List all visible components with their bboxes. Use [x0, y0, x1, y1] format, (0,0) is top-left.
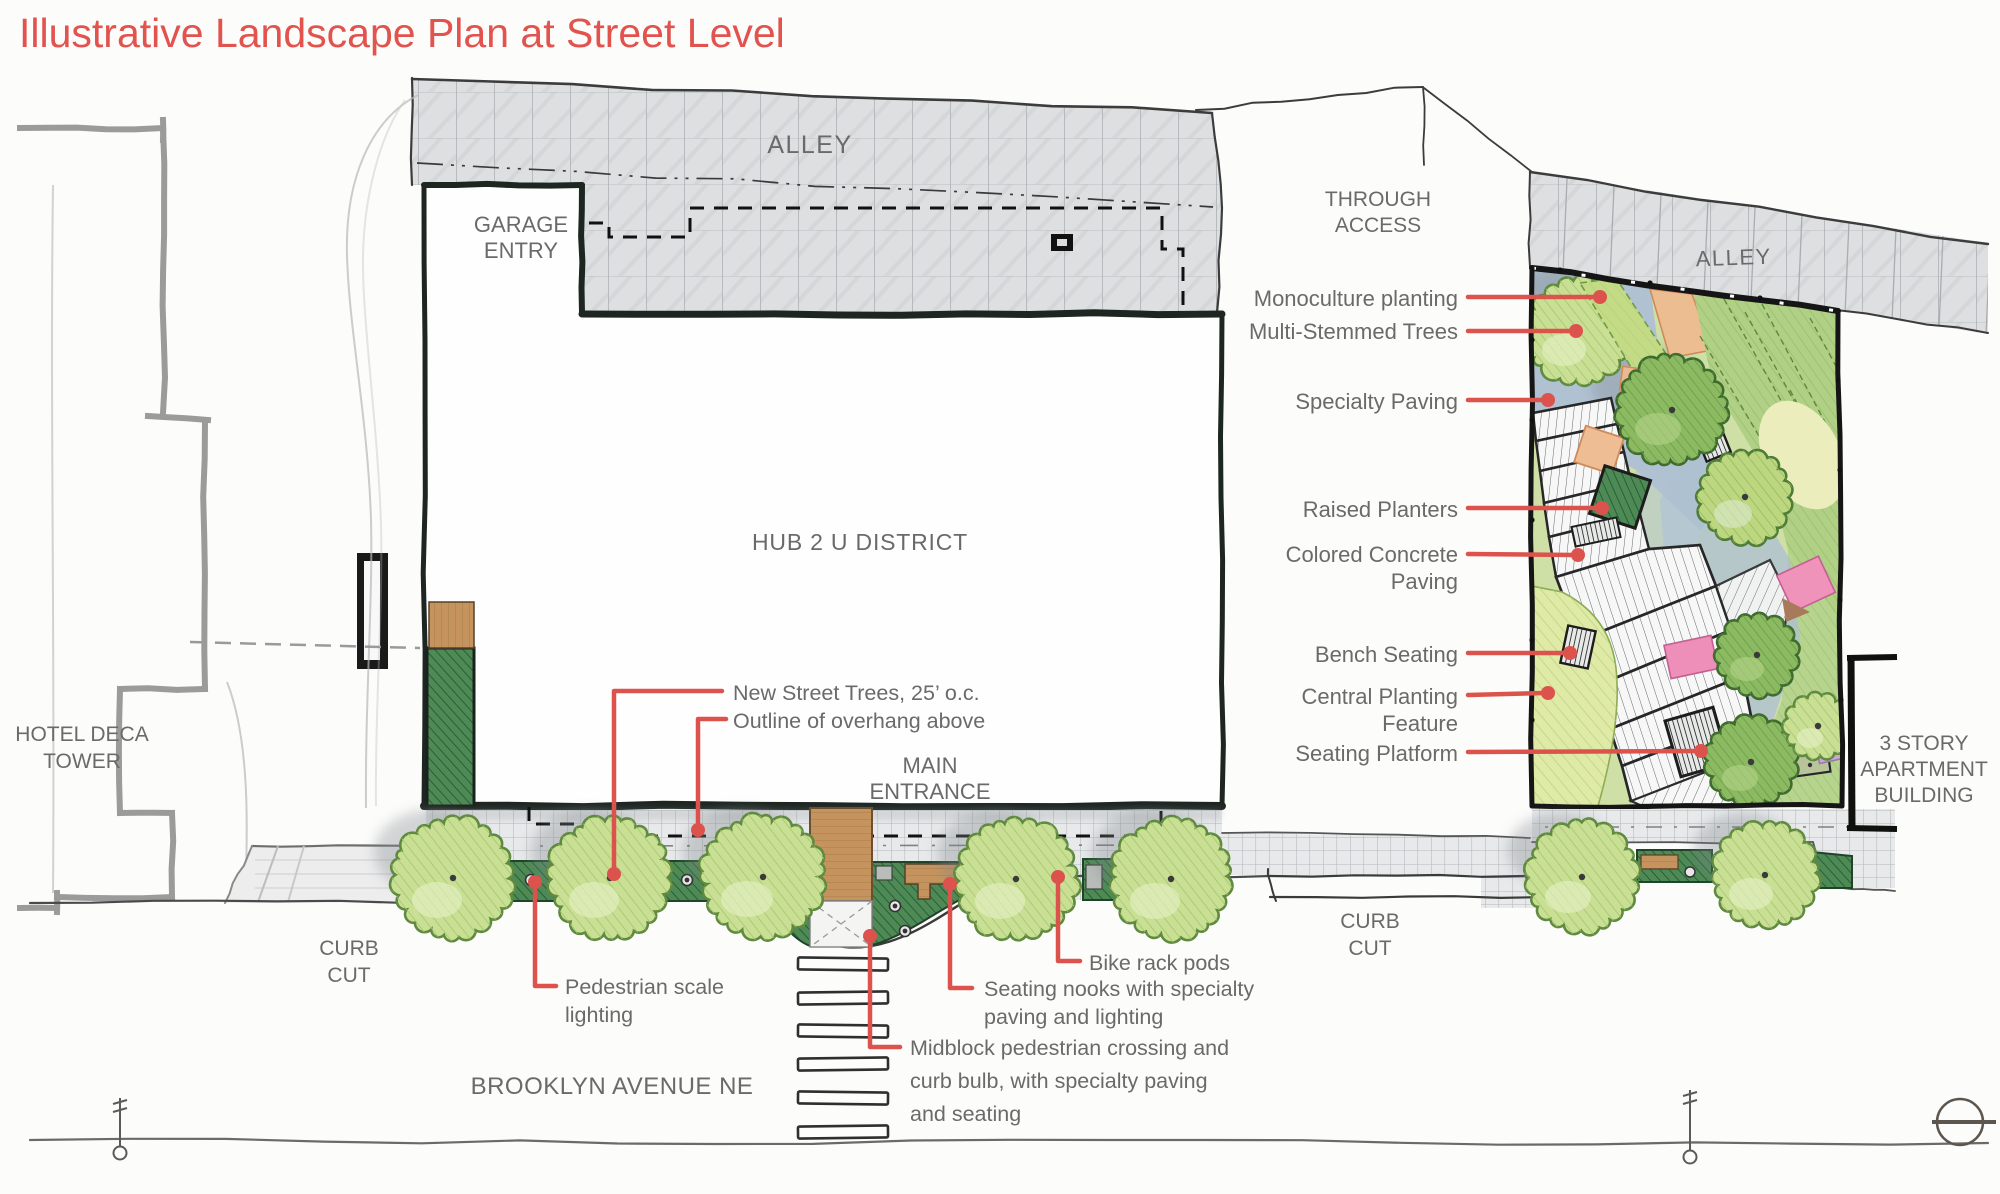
svg-text:New Street Trees, 25’ o.c.: New Street Trees, 25’ o.c.	[733, 681, 980, 705]
svg-text:curb bulb, with specialty pavi: curb bulb, with specialty paving	[910, 1069, 1208, 1093]
svg-text:Paving: Paving	[1391, 569, 1458, 594]
svg-text:CUT: CUT	[327, 964, 370, 987]
svg-text:TOWER: TOWER	[43, 750, 121, 773]
svg-text:and seating: and seating	[910, 1102, 1021, 1126]
svg-text:Midblock pedestrian crossing a: Midblock pedestrian crossing and	[910, 1036, 1229, 1060]
svg-text:ALLEY: ALLEY	[1695, 244, 1772, 272]
svg-text:MAIN: MAIN	[903, 753, 958, 778]
svg-text:Specialty Paving: Specialty Paving	[1295, 389, 1458, 414]
svg-text:HOTEL DECA: HOTEL DECA	[15, 723, 148, 746]
svg-text:ACCESS: ACCESS	[1335, 214, 1421, 237]
svg-text:Bike rack pods: Bike rack pods	[1089, 951, 1230, 975]
svg-text:BROOKLYN AVENUE NE: BROOKLYN AVENUE NE	[471, 1073, 754, 1100]
svg-text:Colored Concrete: Colored Concrete	[1286, 542, 1458, 567]
svg-text:BUILDING: BUILDING	[1874, 784, 1973, 807]
svg-text:ENTRANCE: ENTRANCE	[869, 779, 990, 804]
svg-text:ENTRY: ENTRY	[484, 238, 558, 263]
svg-text:APARTMENT: APARTMENT	[1860, 758, 1988, 781]
svg-text:Monoculture planting: Monoculture planting	[1254, 286, 1458, 311]
svg-text:Seating nooks with specialty: Seating nooks with specialty	[984, 977, 1254, 1001]
svg-text:Feature: Feature	[1382, 711, 1458, 736]
svg-text:paving and lighting: paving and lighting	[984, 1005, 1163, 1029]
svg-text:Pedestrian scale: Pedestrian scale	[565, 975, 724, 999]
svg-text:CURB: CURB	[319, 937, 379, 960]
svg-text:Illustrative Landscape Plan at: Illustrative Landscape Plan at Street Le…	[19, 10, 785, 56]
svg-text:GARAGE: GARAGE	[474, 212, 568, 237]
svg-text:Central Planting: Central Planting	[1301, 684, 1458, 709]
svg-text:Bench Seating: Bench Seating	[1315, 642, 1458, 667]
svg-text:ALLEY: ALLEY	[767, 131, 852, 159]
svg-text:HUB 2 U DISTRICT: HUB 2 U DISTRICT	[752, 529, 968, 555]
svg-text:Outline of overhang above: Outline of overhang above	[733, 709, 985, 733]
svg-text:CURB: CURB	[1340, 910, 1400, 933]
svg-text:CUT: CUT	[1348, 937, 1391, 960]
svg-text:lighting: lighting	[565, 1003, 633, 1027]
svg-text:THROUGH: THROUGH	[1325, 188, 1431, 211]
svg-text:Multi-Stemmed Trees: Multi-Stemmed Trees	[1249, 319, 1458, 344]
svg-text:3 STORY: 3 STORY	[1879, 732, 1968, 755]
svg-text:Raised Planters: Raised Planters	[1303, 497, 1458, 522]
svg-text:Seating Platform: Seating Platform	[1295, 741, 1458, 766]
